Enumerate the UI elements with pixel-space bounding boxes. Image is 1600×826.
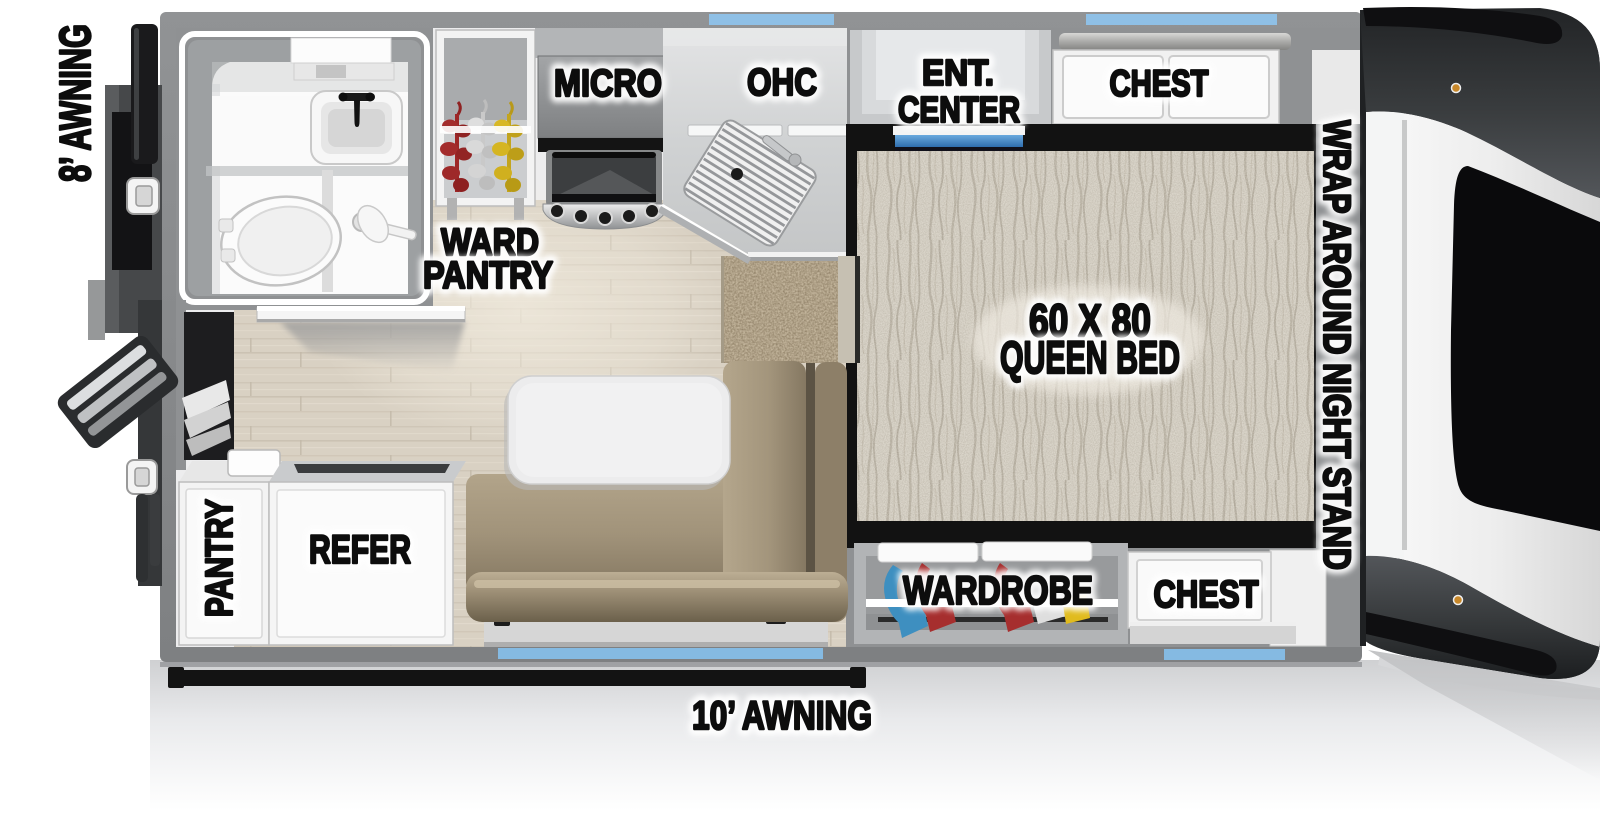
svg-text:CENTER: CENTER [898, 89, 1020, 130]
svg-text:8’ AWNING: 8’ AWNING [51, 24, 100, 182]
svg-text:WARDROBE: WARDROBE [903, 569, 1093, 613]
svg-text:OHC: OHC [747, 62, 817, 104]
svg-text:REFER: REFER [309, 528, 411, 572]
svg-text:ENT.: ENT. [922, 52, 994, 93]
svg-text:PANTRY: PANTRY [199, 499, 241, 617]
svg-text:MICRO: MICRO [554, 63, 662, 105]
svg-text:CHEST: CHEST [1154, 574, 1259, 616]
svg-text:WRAP AROUND NIGHT STAND: WRAP AROUND NIGHT STAND [1315, 120, 1357, 570]
svg-text:QUEEN BED: QUEEN BED [1000, 332, 1180, 383]
svg-text:CHEST: CHEST [1110, 63, 1209, 104]
svg-text:PANTRY: PANTRY [423, 255, 553, 297]
svg-text:10’ AWNING: 10’ AWNING [692, 694, 872, 738]
